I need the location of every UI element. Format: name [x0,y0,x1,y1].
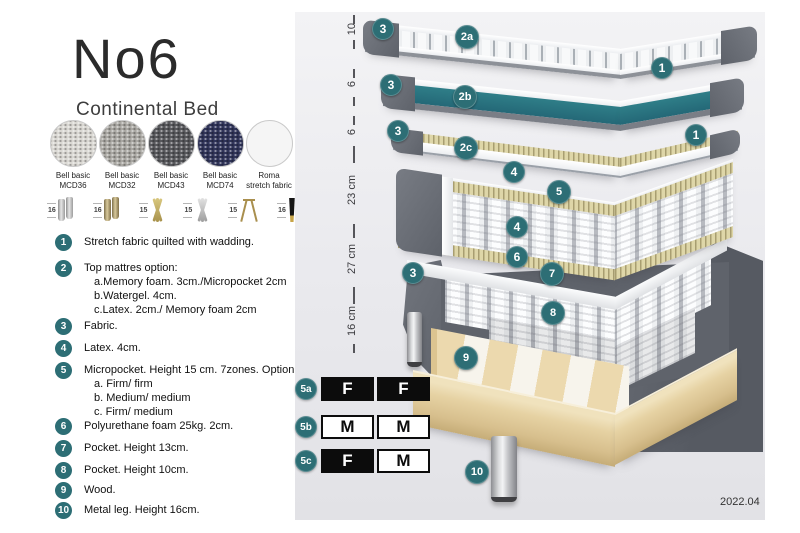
legend-item-10: 10 Metal leg. Height 16cm. [55,502,200,519]
swatch-code: stretch fabric [246,181,292,190]
badge-leg-10: 10 [465,460,489,484]
fabric-swatches: Bell basicMCD36 Bell basicMCD32 Bell bas… [50,120,292,190]
badge-pocket-7: 7 [540,262,564,286]
leg-option: 16 [94,197,121,223]
legend-item-9: 9 Wood. [55,482,116,499]
badge-stretch-1: 1 [651,57,673,79]
legend-item-5: 5 Micropocket. Height 15 cm. 7zones. Opt… [55,362,297,419]
swatch-code: MCD74 [206,181,233,190]
swatch-name: Roma [258,171,279,180]
legend-number-badge: 4 [55,340,72,357]
legend-subitem: a. Firm/ firm [94,378,153,390]
badge-fabric: 3 [372,18,394,40]
leg-height: 16 [94,204,102,217]
ruler-tick [353,97,355,106]
legend-text: Stretch fabric quilted with wadding. [84,235,254,251]
dimension-label: 23 cm [341,155,363,225]
mattress-left-shell [396,168,442,257]
dimension-label: 10 [341,17,363,42]
ruler-tick [353,295,355,304]
legend-item-6: 6 Polyurethane foam 25kg. 2cm. [55,418,233,435]
legend-subitem: b.Watergel. 4cm. [94,290,177,302]
fabric-swatch: Bell basicMCD32 [99,120,145,190]
legend-text: Fabric. [84,319,118,335]
badge-micropocket-5: 5 [547,180,571,204]
legend-number-badge: 3 [55,318,72,335]
leg-option: 16 [48,197,75,223]
firmness-cell: M [321,415,374,439]
legend-number-badge: 10 [55,502,72,519]
legend-item-3: 3 Fabric. [55,318,118,335]
badge-wood-9: 9 [454,346,478,370]
cylinder-brass-leg-icon [104,197,121,223]
legend-number-badge: 6 [55,418,72,435]
swatch-name: Bell basic [105,171,139,180]
legend-item-8: 8 Pocket. Height 10cm. [55,462,189,479]
ruler-tick [353,344,355,353]
legend-text: Latex. 4cm. [84,341,141,357]
swatch-code: MCD32 [108,181,135,190]
version-date: 2022.04 [720,496,760,508]
micropocket-top-layer [620,28,755,79]
legend-subitem: b. Medium/ medium [94,392,191,404]
badge-pocket-8: 8 [541,301,565,325]
fabric-swatch-circle [246,120,293,167]
swatch-name: Bell basic [203,171,237,180]
firmness-cell: M [377,415,430,439]
badge-latex-4: 4 [506,216,528,238]
layer-corner-cap [710,128,740,159]
ruler-tick [353,69,355,78]
dimension-label: 27 cm [341,230,363,288]
fabric-swatch-circle [197,120,244,167]
fabric-swatch: Bell basicMCD74 [197,120,243,190]
legend-item-1: 1 Stretch fabric quilted with wadding. [55,234,254,251]
bed-diagram: 10 6 6 23 cm 27 cm 16 cm [295,12,765,520]
legend-number-badge: 9 [55,482,72,499]
fabric-swatch: Bell basicMCD43 [148,120,194,190]
legend-text: Pocket. Height 10cm. [84,463,189,479]
firmness-badge: 5c [295,450,317,472]
legend-item-4: 4 Latex. 4cm. [55,340,141,357]
watergel-layer [383,76,620,131]
legend-text: Wood. [84,483,116,499]
fabric-swatch: Bell basicMCD36 [50,120,96,190]
legend-number-badge: 8 [55,462,72,479]
legend-text: Metal leg. Height 16cm. [84,503,200,519]
firmness-cell: M [377,449,430,473]
legend-item-2: 2 Top mattres option: a.Memory foam. 3cm… [55,260,287,317]
legend-text: Micropocket. Height 15 cm. 7zones. Optio… [84,364,297,376]
firmness-cell: F [321,449,374,473]
legend-subitem: c.Latex. 2cm./ Memory foam 2cm [94,304,257,316]
page-subtitle: Continental Bed [76,99,219,121]
fabric-swatch-circle [50,120,97,167]
metal-leg-left [407,312,422,367]
swatch-name: Bell basic [56,171,90,180]
ruler-tick [353,154,355,163]
badge-foam-6: 6 [506,246,528,268]
badge-2b: 2b [453,85,477,109]
badge-fabric: 3 [380,74,402,96]
page-title: No6 [72,26,181,91]
legend-number-badge: 1 [55,234,72,251]
badge-stretch-1: 1 [685,124,707,146]
legend-number-badge: 5 [55,362,72,379]
micropocket-top-layer [365,22,620,79]
legend-text: Top mattres option: [84,262,178,274]
leg-option: 15 [229,197,259,223]
swatch-code: MCD36 [59,181,86,190]
layer-corner-cap [710,77,744,117]
ruler-tick [353,15,355,24]
swatch-code: MCD43 [157,181,184,190]
firmness-row-5a: 5a F F [295,377,430,401]
metal-leg-front [491,436,517,502]
swatch-name: Bell basic [154,171,188,180]
firmness-cell: F [321,377,374,401]
dimension-label: 16 cm [341,296,363,345]
cylinder-silver-leg-icon [58,197,75,223]
layer-corner-cap [721,25,757,65]
leg-height: 15 [140,204,148,217]
badge-latex-4: 4 [503,161,525,183]
legend-number-badge: 2 [55,260,72,277]
leg-options: 16 16 15 15 15 16 [48,190,296,230]
legend-item-7: 7 Pocket. Height 13cm. [55,440,189,457]
fabric-swatch: Romastretch fabric [246,120,292,190]
leg-height: 16 [278,204,286,217]
leg-height: 15 [184,204,192,217]
mattress-cut-edge [442,177,453,257]
fabric-swatch-circle [99,120,146,167]
firmness-row-5c: 5c F M [295,449,430,473]
badge-fabric: 3 [387,120,409,142]
dimension-label: 6 [341,117,363,147]
ruler-tick [353,116,355,125]
dimension-label: 6 [341,70,363,98]
firmness-badge: 5b [295,416,317,438]
watergel-layer [620,79,742,131]
ruler-tick [353,229,355,238]
legend-number-badge: 7 [55,440,72,457]
twisted-silver-leg-icon [194,197,210,223]
leg-option: 16 [278,197,296,223]
legend-text: Pocket. Height 13cm. [84,441,189,457]
hairpin-leg-icon [239,197,259,223]
leg-option: 15 [140,197,166,223]
leg-option: 15 [184,197,210,223]
leg-height: 15 [229,204,237,217]
firmness-row-5b: 5b M M [295,415,430,439]
leg-height: 16 [48,204,56,217]
twisted-gold-leg-icon [149,197,165,223]
fabric-swatch-circle [148,120,195,167]
badge-2a: 2a [455,25,479,49]
badge-2c: 2c [454,136,478,160]
firmness-cell: F [377,377,430,401]
legend-subitem: c. Firm/ medium [94,406,173,418]
badge-fabric: 3 [402,262,424,284]
legend-subitem: a.Memory foam. 3cm./Micropocket 2cm [94,276,287,288]
legend-text: Polyurethane foam 25kg. 2cm. [84,419,233,435]
ruler-tick [353,40,355,49]
firmness-badge: 5a [295,378,317,400]
